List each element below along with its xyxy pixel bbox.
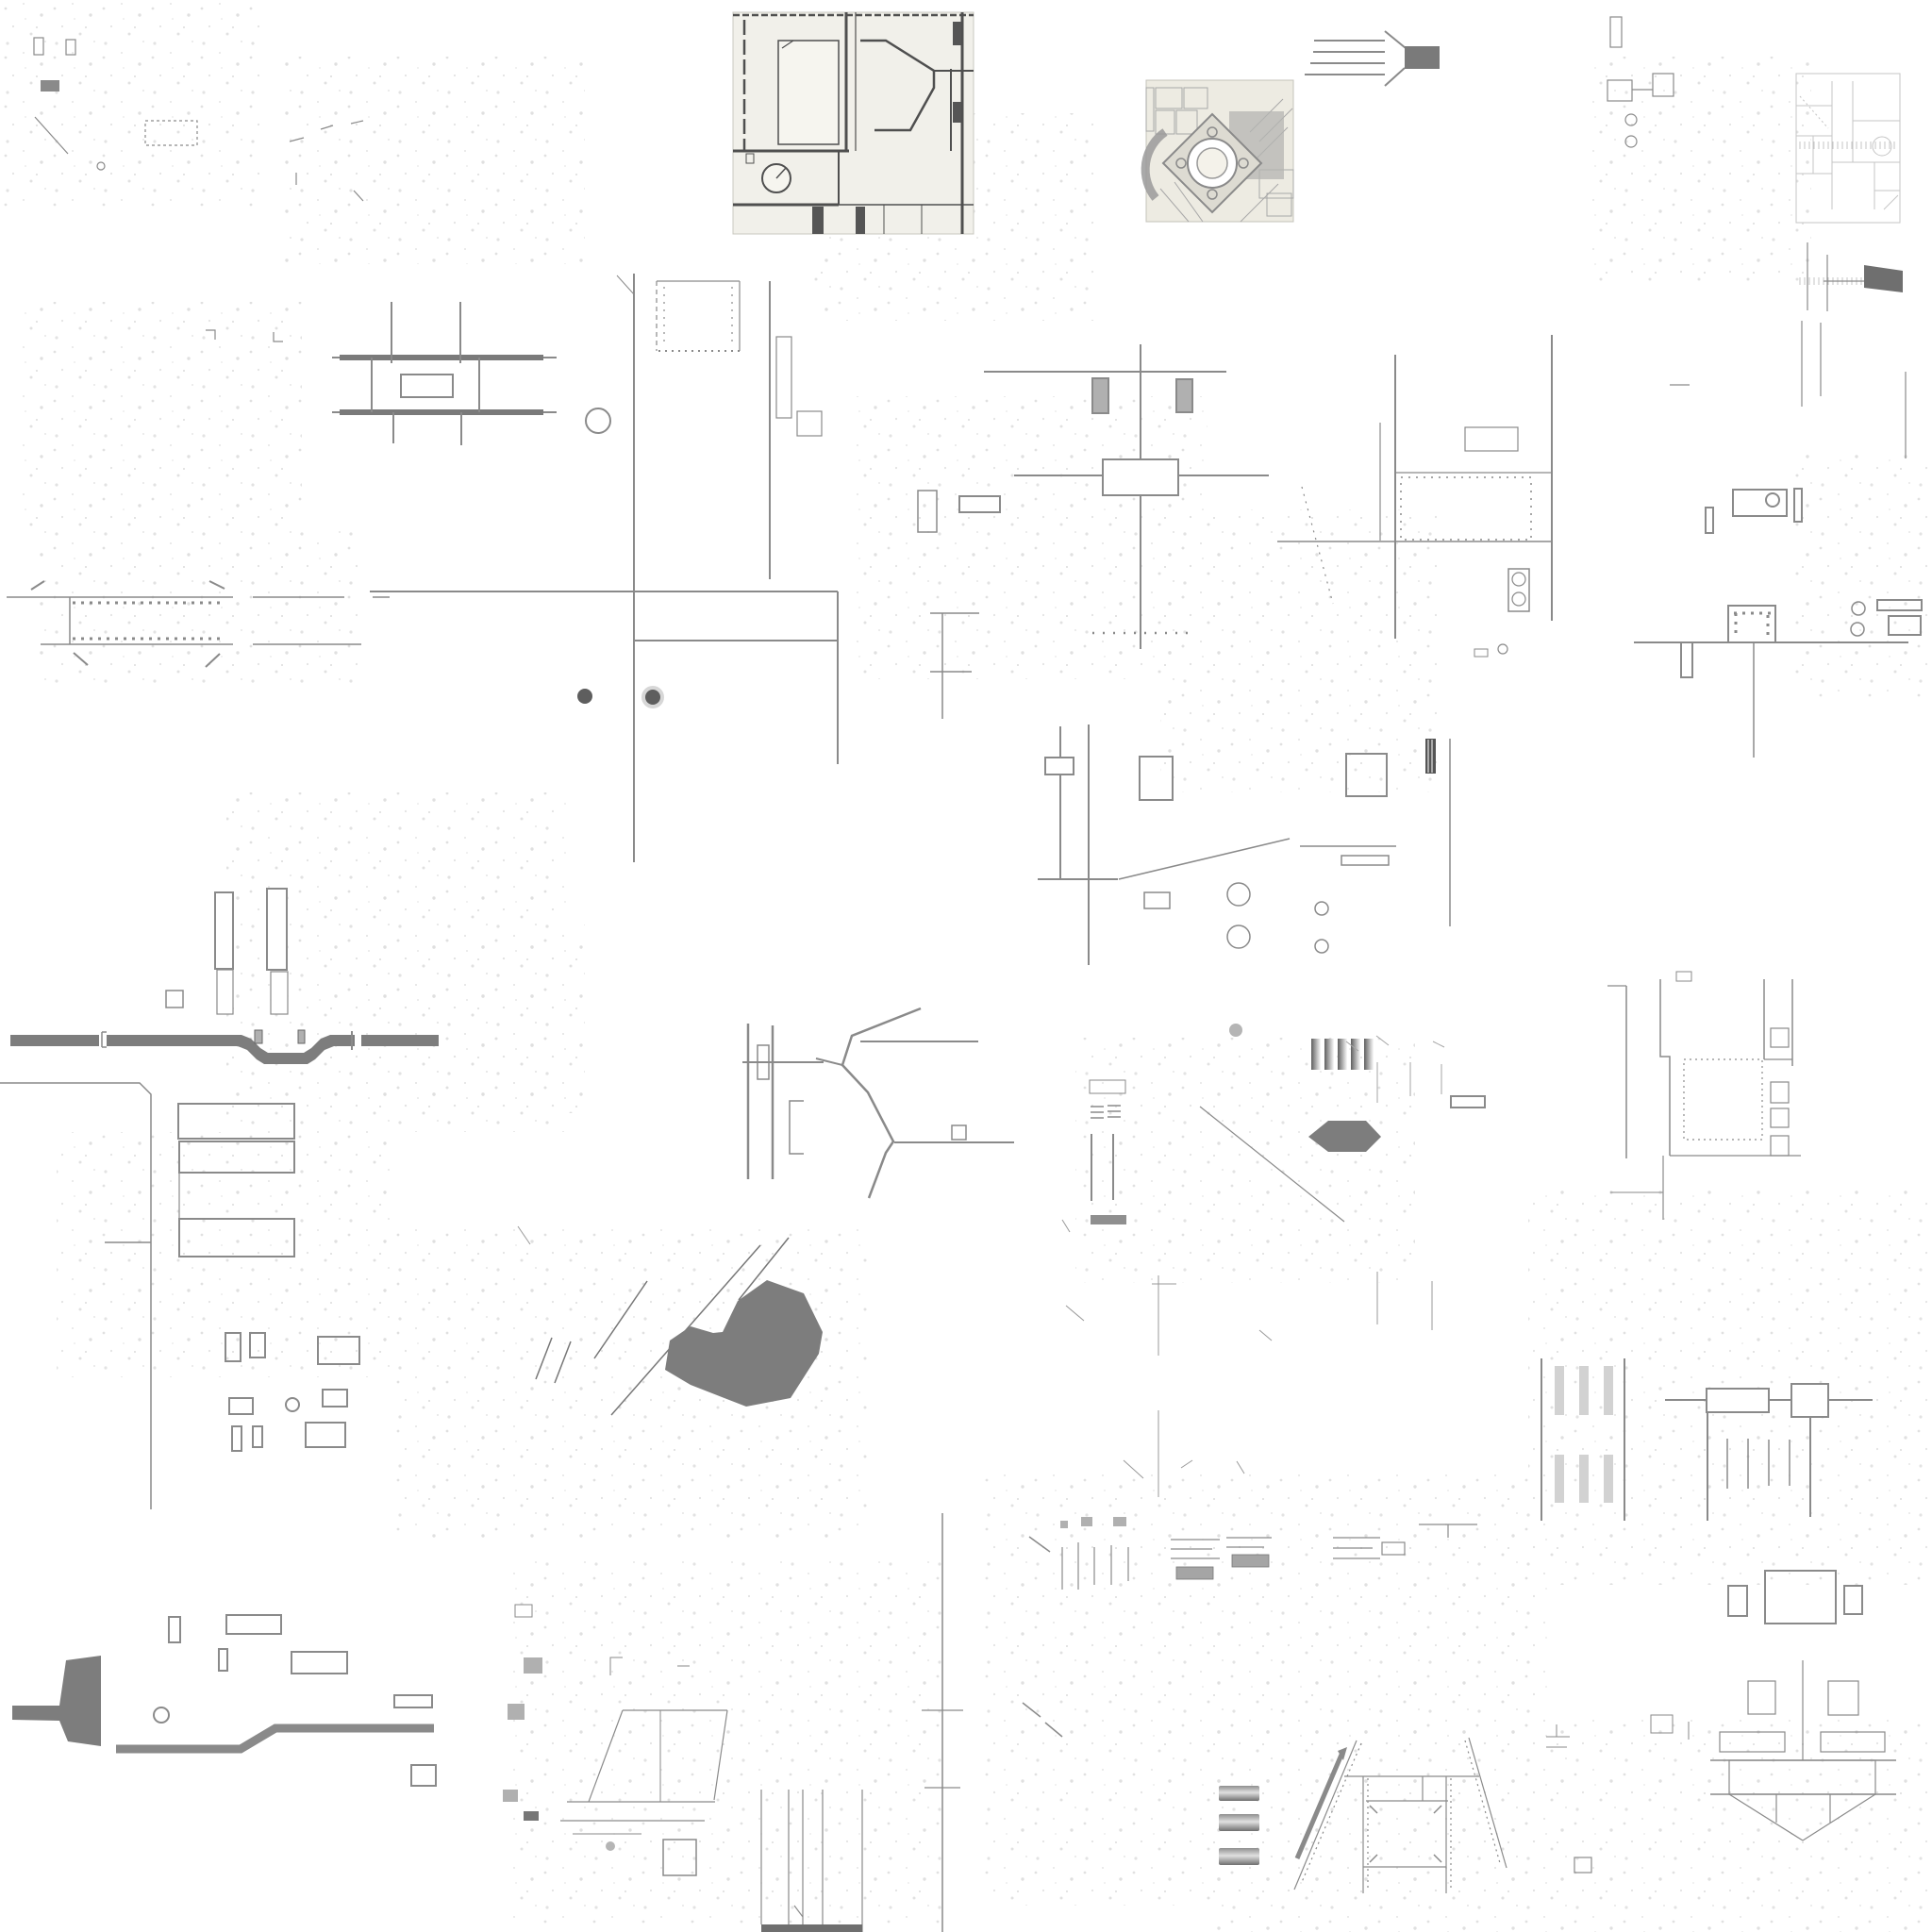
gradient-ribs xyxy=(1311,1039,1374,1070)
artboard: { "artboard": { "width": 2048, "height":… xyxy=(0,0,1932,1932)
floor-plan-thumbnail-1 xyxy=(733,12,974,234)
gray-post xyxy=(1176,379,1192,412)
band-segment xyxy=(361,1035,439,1046)
dark-bar xyxy=(761,1924,862,1932)
band-segment xyxy=(10,1035,99,1046)
gray-bar xyxy=(1091,1215,1126,1224)
gradient-pill xyxy=(1219,1786,1259,1801)
gray-dot xyxy=(1229,1024,1242,1037)
striped-post xyxy=(1425,739,1436,774)
funnel-block xyxy=(1405,46,1440,69)
dot-marker xyxy=(645,690,660,705)
floor-plan-thumbnail-2 xyxy=(1145,80,1293,222)
drawing-canvas xyxy=(0,0,1932,1932)
dot-marker xyxy=(577,689,592,704)
gray-post xyxy=(1092,378,1108,413)
gradient-pill xyxy=(1219,1814,1259,1831)
gradient-pill xyxy=(1219,1848,1259,1865)
